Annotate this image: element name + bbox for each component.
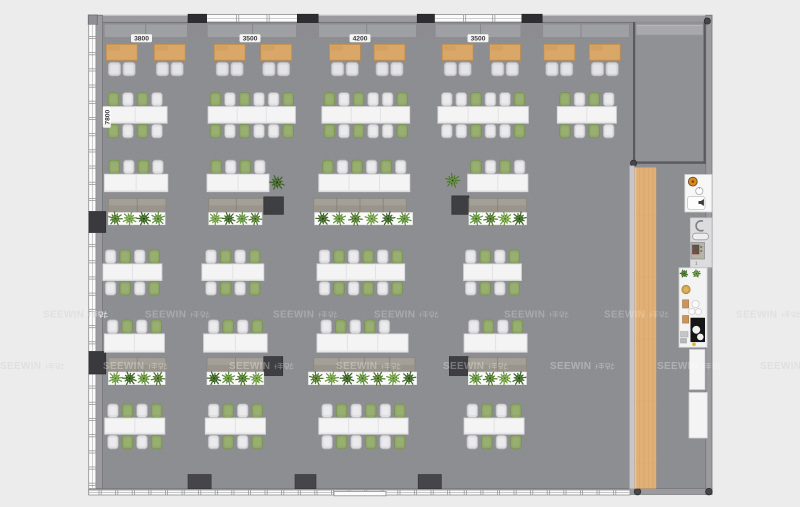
svg-text:SEEWIN: SEEWIN bbox=[760, 361, 800, 372]
svg-text:SEEWIN: SEEWIN bbox=[604, 309, 645, 320]
svg-text:SEEWIN: SEEWIN bbox=[145, 309, 186, 320]
svg-text:3500: 3500 bbox=[471, 36, 486, 43]
svg-text:3500: 3500 bbox=[243, 36, 258, 43]
svg-text:SEEWIN: SEEWIN bbox=[736, 309, 777, 320]
svg-text:SEEWIN: SEEWIN bbox=[657, 361, 698, 372]
svg-text:SEEWIN: SEEWIN bbox=[443, 361, 484, 372]
svg-text:SEEWIN: SEEWIN bbox=[0, 361, 41, 372]
svg-text:3800: 3800 bbox=[134, 36, 149, 43]
svg-text:SEEWIN: SEEWIN bbox=[550, 361, 591, 372]
svg-text:SEEWIN: SEEWIN bbox=[374, 309, 415, 320]
svg-text:7800: 7800 bbox=[104, 109, 111, 124]
svg-text:4200: 4200 bbox=[353, 36, 368, 43]
svg-text:SEEWIN: SEEWIN bbox=[229, 361, 270, 372]
svg-text:SEEWIN: SEEWIN bbox=[43, 309, 84, 320]
svg-text:SEEWIN: SEEWIN bbox=[336, 361, 377, 372]
svg-text:SEEWIN: SEEWIN bbox=[103, 361, 144, 372]
svg-text:SEEWIN: SEEWIN bbox=[504, 309, 545, 320]
svg-text:SEEWIN: SEEWIN bbox=[273, 309, 314, 320]
